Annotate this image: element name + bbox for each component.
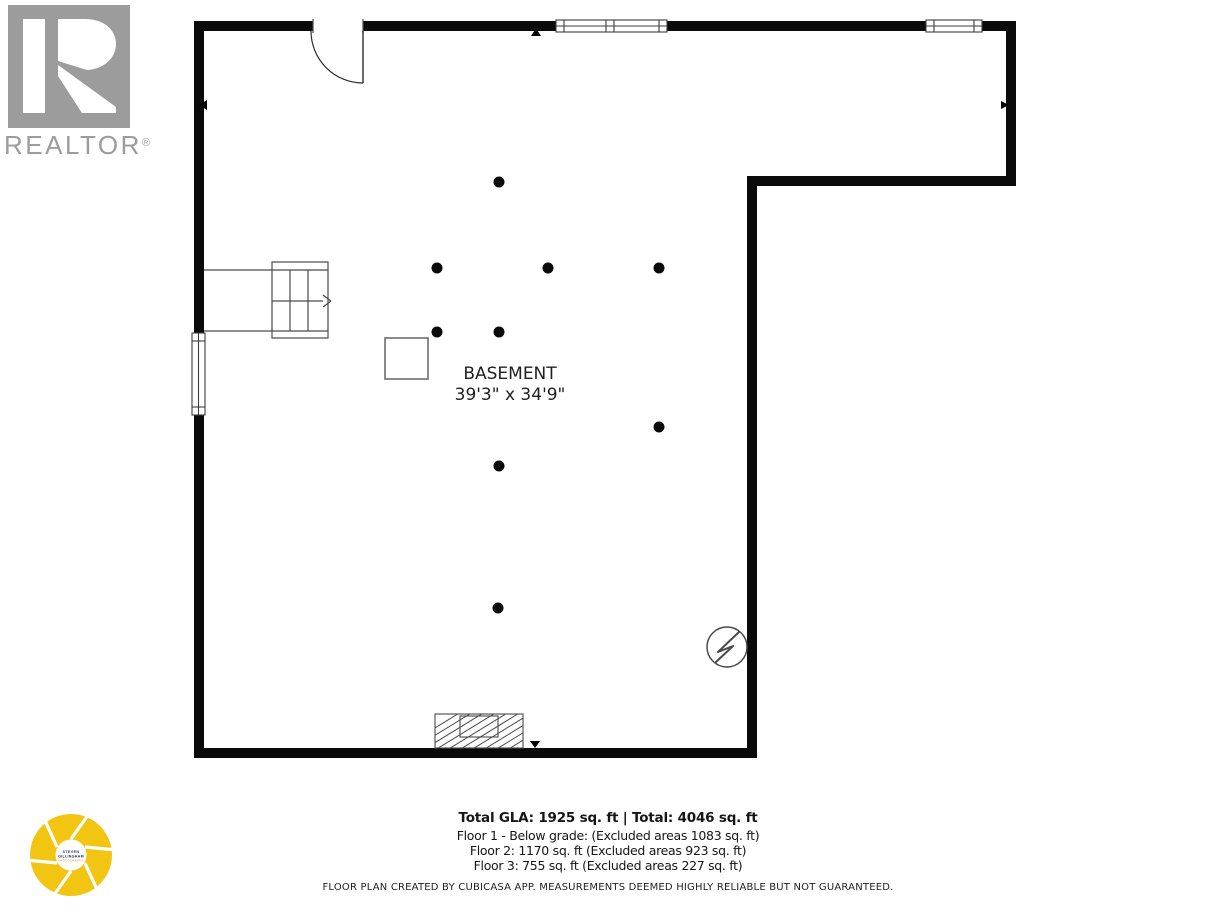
hatched-area-inner-landing — [460, 716, 498, 737]
column-dot — [654, 263, 665, 274]
hatched-excluded-area — [399, 712, 581, 750]
electrical-panel-icon — [707, 627, 747, 667]
wall-right-upper — [1006, 21, 1016, 186]
realtor-wordmark-text: REALTOR — [4, 130, 142, 160]
wall-step — [747, 176, 1016, 186]
wall-bottom — [194, 748, 757, 758]
realtor-wordmark: REALTOR® — [4, 130, 154, 161]
wall-left-upper — [194, 21, 204, 333]
room-label-block: BASEMENT 39'3" x 34'9" — [430, 364, 590, 406]
floor2-line: Floor 2: 1170 sq. ft (Excluded areas 923… — [0, 843, 1216, 858]
disclaimer-text: FLOOR PLAN CREATED BY CUBICASA APP. MEAS… — [0, 882, 1216, 893]
floor1-line: Floor 1 - Below grade: (Excluded areas 1… — [0, 828, 1216, 843]
staircase-symbol — [204, 262, 331, 338]
wall-reference-arrows — [199, 28, 1009, 748]
floor-plan-page: REALTOR® BASEMENT 39'3" x 34'9" STEVEN G… — [0, 0, 1216, 912]
column-dot — [494, 177, 505, 188]
total-gla-line: Total GLA: 1925 sq. ft | Total: 4046 sq.… — [0, 810, 1216, 826]
column-dot — [493, 603, 504, 614]
window-top-right — [926, 20, 982, 32]
room-name: BASEMENT — [430, 364, 590, 385]
column-dot — [432, 327, 443, 338]
window-left-wall — [192, 333, 205, 415]
column-dot — [494, 327, 505, 338]
arrow-down-icon — [530, 741, 540, 748]
column-dot — [654, 422, 665, 433]
wall-left-lower — [194, 415, 204, 758]
wall-right-lower — [747, 176, 757, 758]
column-dot — [494, 461, 505, 472]
door-opening — [313, 19, 363, 33]
exterior-walls — [194, 21, 1016, 758]
utility-square-symbol — [385, 338, 428, 379]
column-dot — [543, 263, 554, 274]
room-dimensions: 39'3" x 34'9" — [430, 385, 590, 406]
floor-plan-drawing — [0, 0, 1216, 912]
floor3-line: Floor 3: 755 sq. ft (Excluded areas 227 … — [0, 858, 1216, 873]
door-symbol — [311, 19, 363, 83]
door-swing-arc — [311, 31, 363, 83]
realtor-logo — [8, 5, 130, 128]
column-dot — [432, 263, 443, 274]
registered-trademark-symbol: ® — [142, 137, 150, 149]
window-top-double — [556, 20, 667, 32]
area-summary-block: Total GLA: 1925 sq. ft | Total: 4046 sq.… — [0, 810, 1216, 873]
stair-outline — [272, 262, 328, 338]
